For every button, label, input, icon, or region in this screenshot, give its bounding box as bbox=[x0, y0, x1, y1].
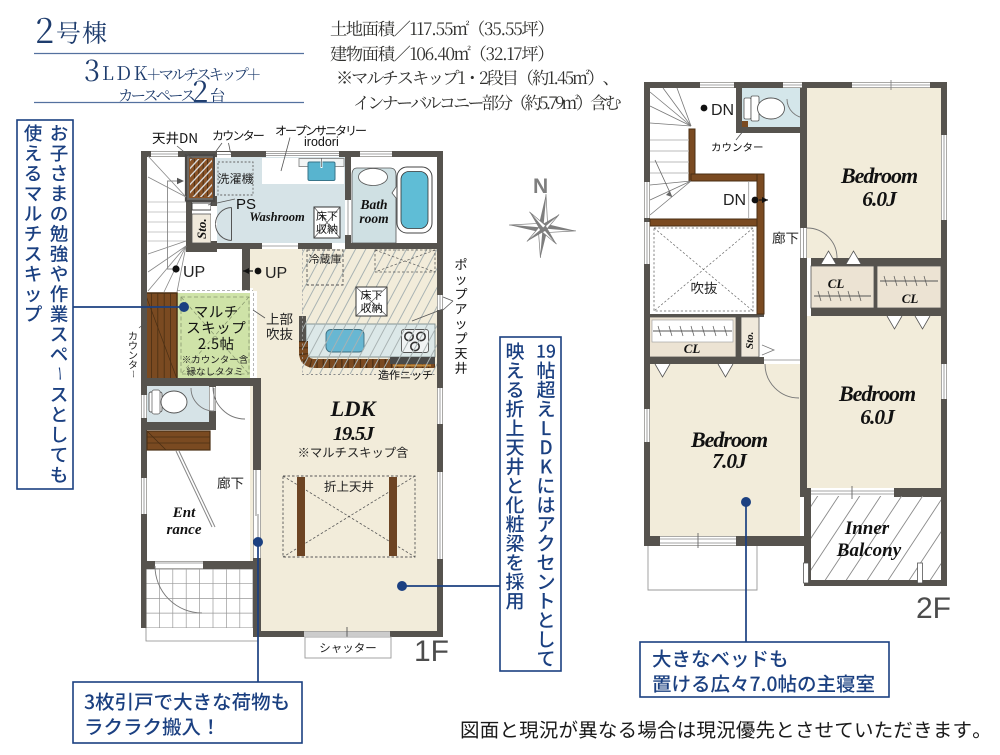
svg-text:CL: CL bbox=[828, 276, 845, 291]
svg-text:19.5J: 19.5J bbox=[333, 423, 375, 445]
svg-text:Sto.: Sto. bbox=[744, 332, 756, 349]
svg-text:Bedroom: Bedroom bbox=[840, 163, 918, 188]
svg-text:CL: CL bbox=[902, 291, 919, 306]
svg-text:UP: UP bbox=[265, 265, 287, 282]
svg-text:Bath: Bath bbox=[359, 197, 387, 212]
svg-text:Sto.: Sto. bbox=[194, 218, 209, 239]
svg-text:DN: DN bbox=[723, 192, 746, 209]
svg-text:Balcony: Balcony bbox=[836, 540, 902, 561]
svg-text:Ent: Ent bbox=[172, 505, 196, 521]
svg-text:irodori: irodori bbox=[304, 135, 339, 149]
svg-text:N: N bbox=[533, 175, 548, 198]
svg-text:Washroom: Washroom bbox=[249, 210, 305, 224]
svg-text:6.0J: 6.0J bbox=[862, 187, 898, 211]
svg-text:Bedroom: Bedroom bbox=[838, 381, 916, 406]
svg-text:7.0J: 7.0J bbox=[712, 449, 748, 473]
svg-text:CL: CL bbox=[684, 341, 701, 356]
svg-text:1F: 1F bbox=[414, 635, 449, 668]
svg-text:LDK: LDK bbox=[330, 396, 378, 421]
svg-text:Inner: Inner bbox=[844, 518, 890, 539]
svg-text:DN: DN bbox=[711, 102, 734, 119]
svg-text:6.0J: 6.0J bbox=[860, 405, 896, 429]
svg-text:PS: PS bbox=[236, 196, 256, 213]
svg-text:room: room bbox=[359, 211, 388, 226]
svg-text:2F: 2F bbox=[916, 592, 951, 625]
svg-text:rance: rance bbox=[167, 522, 202, 538]
svg-text:UP: UP bbox=[183, 264, 205, 281]
